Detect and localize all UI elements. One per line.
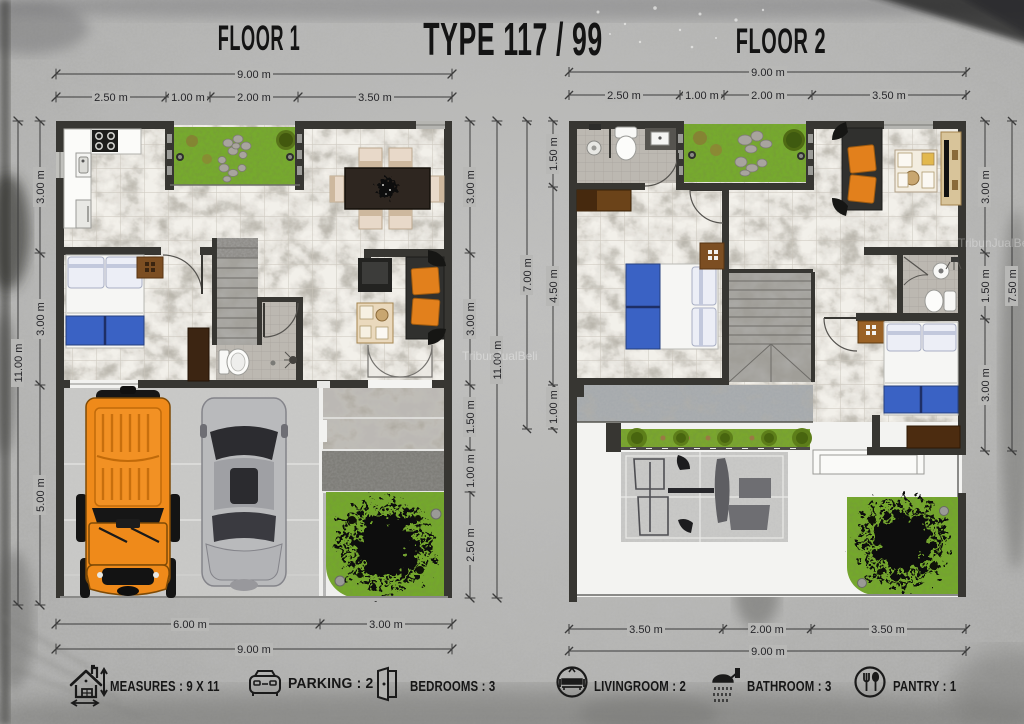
svg-text:FLOOR 1: FLOOR 1: [218, 19, 300, 58]
svg-text:4.50 m: 4.50 m: [548, 269, 560, 303]
svg-text:3.00 m: 3.00 m: [465, 302, 477, 336]
svg-text:3.00 m: 3.00 m: [35, 170, 47, 204]
svg-text:3.00 m: 3.00 m: [980, 368, 992, 402]
svg-text:3.50 m: 3.50 m: [358, 92, 392, 104]
svg-text:PANTRY : 1: PANTRY : 1: [893, 677, 957, 694]
svg-text:3.00 m: 3.00 m: [465, 170, 477, 204]
svg-text:1.50 m: 1.50 m: [465, 400, 477, 434]
svg-text:BEDROOMS : 3: BEDROOMS : 3: [410, 677, 495, 694]
svg-text:1.50 m: 1.50 m: [548, 137, 560, 171]
svg-text:PARKING : 2: PARKING : 2: [288, 676, 373, 693]
svg-text:TribunJualBeli: TribunJualBeli: [958, 236, 1024, 250]
svg-text:9.00 m: 9.00 m: [751, 67, 785, 79]
svg-text:3.00 m: 3.00 m: [369, 619, 403, 631]
svg-text:1.00 m: 1.00 m: [465, 454, 477, 488]
svg-text:3.50 m: 3.50 m: [629, 624, 663, 636]
svg-text:1.00 m: 1.00 m: [685, 90, 719, 102]
svg-text:2.50 m: 2.50 m: [607, 90, 641, 102]
svg-text:7.50 m: 7.50 m: [1007, 269, 1019, 303]
svg-text:2.50 m: 2.50 m: [94, 92, 128, 104]
svg-text:9.00 m: 9.00 m: [751, 646, 785, 658]
svg-text:BATHROOM : 3: BATHROOM : 3: [747, 677, 832, 694]
svg-text:7.00 m: 7.00 m: [522, 258, 534, 292]
svg-text:2.50 m: 2.50 m: [465, 528, 477, 562]
svg-text:5.00 m: 5.00 m: [35, 478, 47, 512]
svg-text:3.50 m: 3.50 m: [871, 624, 905, 636]
svg-text:FLOOR 2: FLOOR 2: [736, 22, 826, 61]
svg-text:1.00 m: 1.00 m: [548, 390, 560, 424]
svg-text:TribunJualBeli: TribunJualBeli: [462, 349, 538, 363]
svg-text:MEASURES : 9 X 11: MEASURES : 9 X 11: [110, 677, 220, 694]
svg-text:1.50 m: 1.50 m: [980, 269, 992, 303]
svg-text:9.00 m: 9.00 m: [237, 644, 271, 656]
svg-text:11.00 m: 11.00 m: [13, 344, 25, 383]
svg-text:1.00 m: 1.00 m: [171, 92, 205, 104]
svg-text:3.00 m: 3.00 m: [980, 170, 992, 204]
svg-text:LIVINGROOM : 2: LIVINGROOM : 2: [594, 677, 686, 694]
svg-text:2.00 m: 2.00 m: [750, 624, 784, 636]
svg-text:TYPE 117 / 99: TYPE 117 / 99: [423, 13, 603, 64]
svg-text:9.00 m: 9.00 m: [237, 69, 271, 81]
svg-text:2.00 m: 2.00 m: [237, 92, 271, 104]
svg-text:6.00 m: 6.00 m: [173, 619, 207, 631]
svg-text:3.00 m: 3.00 m: [35, 302, 47, 336]
svg-text:3.50 m: 3.50 m: [872, 90, 906, 102]
svg-text:2.00 m: 2.00 m: [751, 90, 785, 102]
